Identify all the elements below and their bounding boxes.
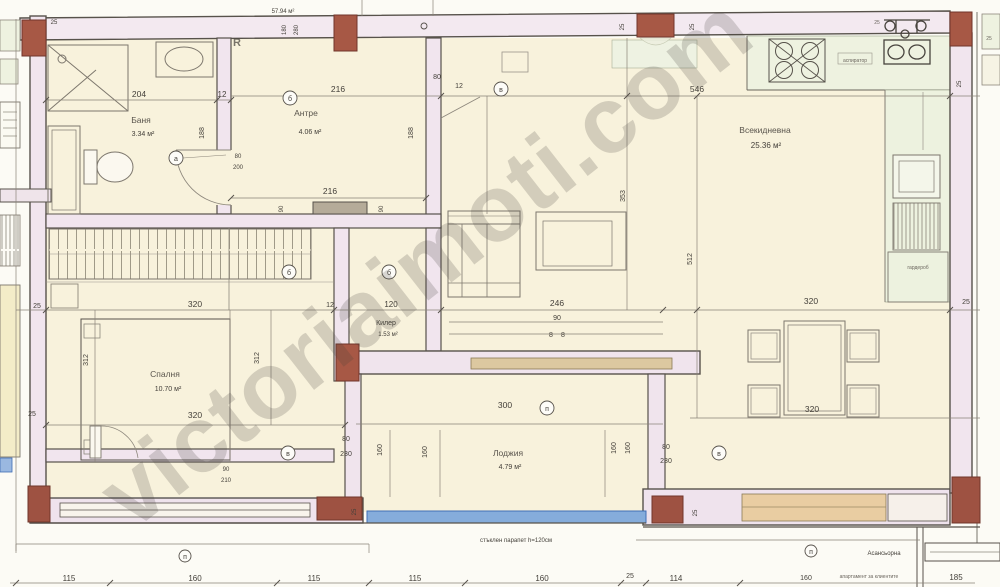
- svg-text:Баня: Баня: [131, 115, 151, 125]
- svg-text:80: 80: [235, 154, 242, 160]
- svg-text:204: 204: [132, 89, 146, 99]
- svg-text:57.94 м²: 57.94 м²: [272, 9, 295, 15]
- svg-text:300: 300: [498, 400, 512, 410]
- svg-text:90: 90: [553, 315, 561, 322]
- svg-text:б: б: [287, 269, 291, 277]
- svg-text:280: 280: [294, 24, 300, 35]
- svg-text:Спалня: Спалня: [150, 369, 180, 379]
- svg-text:25: 25: [620, 23, 626, 30]
- svg-text:8: 8: [549, 332, 553, 339]
- svg-text:114: 114: [670, 574, 683, 583]
- svg-text:гардероб: гардероб: [907, 265, 928, 271]
- svg-text:Всекидневна: Всекидневна: [739, 125, 791, 135]
- svg-text:25: 25: [986, 36, 992, 42]
- svg-text:188: 188: [408, 127, 415, 139]
- svg-text:312: 312: [83, 354, 90, 366]
- svg-text:12: 12: [455, 83, 463, 90]
- svg-text:3.34 м²: 3.34 м²: [132, 131, 155, 138]
- svg-text:8: 8: [561, 332, 565, 339]
- svg-text:п: п: [809, 549, 813, 556]
- svg-text:25: 25: [693, 509, 699, 516]
- svg-text:160: 160: [188, 574, 202, 583]
- svg-text:Антре: Антре: [294, 108, 318, 118]
- svg-text:230: 230: [660, 458, 672, 465]
- svg-text:90: 90: [379, 205, 385, 212]
- svg-text:стъклен парапет h=120см: стъклен парапет h=120см: [480, 538, 552, 544]
- svg-text:п: п: [545, 406, 549, 413]
- svg-text:25: 25: [874, 20, 880, 26]
- svg-text:аспиратор: аспиратор: [843, 58, 867, 64]
- svg-text:512: 512: [687, 253, 694, 265]
- svg-text:апартамент за клиентите: апартамент за клиентите: [840, 574, 899, 580]
- svg-text:115: 115: [63, 574, 76, 583]
- svg-text:25: 25: [28, 411, 36, 418]
- svg-text:25.36 м²: 25.36 м²: [751, 141, 782, 150]
- svg-text:160: 160: [625, 442, 632, 454]
- svg-text:320: 320: [804, 296, 818, 306]
- svg-text:п: п: [183, 554, 187, 561]
- svg-text:Асансьорна: Асансьорна: [867, 551, 901, 557]
- svg-text:160: 160: [377, 444, 384, 456]
- svg-text:115: 115: [308, 574, 321, 583]
- svg-text:25: 25: [51, 20, 58, 26]
- svg-text:80: 80: [433, 74, 441, 81]
- svg-text:246: 246: [550, 298, 564, 308]
- svg-text:90: 90: [279, 205, 285, 212]
- svg-text:230: 230: [340, 451, 352, 458]
- svg-text:а: а: [174, 156, 178, 163]
- svg-text:216: 216: [323, 186, 337, 196]
- svg-text:б: б: [288, 95, 292, 103]
- svg-text:в: в: [286, 451, 290, 458]
- svg-text:Лоджия: Лоджия: [493, 448, 524, 458]
- svg-text:80: 80: [342, 436, 350, 443]
- svg-text:в: в: [499, 87, 503, 94]
- svg-text:25: 25: [33, 303, 41, 310]
- svg-text:185: 185: [949, 573, 963, 582]
- svg-text:320: 320: [188, 299, 202, 309]
- svg-text:320: 320: [805, 404, 819, 414]
- svg-text:4.06 м²: 4.06 м²: [299, 129, 322, 136]
- svg-text:25: 25: [962, 299, 970, 306]
- svg-text:160: 160: [800, 575, 812, 582]
- svg-text:12: 12: [218, 90, 227, 99]
- svg-text:25: 25: [957, 80, 963, 87]
- svg-text:160: 160: [611, 442, 618, 454]
- svg-text:115: 115: [409, 574, 422, 583]
- svg-text:180: 180: [282, 24, 288, 35]
- svg-text:R: R: [233, 37, 241, 49]
- svg-text:160: 160: [535, 574, 549, 583]
- svg-text:25: 25: [352, 508, 358, 515]
- svg-text:25: 25: [626, 573, 634, 580]
- svg-text:353: 353: [620, 190, 627, 202]
- svg-text:216: 216: [331, 84, 345, 94]
- svg-text:188: 188: [199, 127, 206, 139]
- svg-text:200: 200: [233, 165, 244, 171]
- svg-text:80: 80: [662, 444, 670, 451]
- svg-text:в: в: [717, 451, 721, 458]
- svg-text:160: 160: [422, 446, 429, 458]
- svg-text:4.79 м²: 4.79 м²: [499, 464, 522, 471]
